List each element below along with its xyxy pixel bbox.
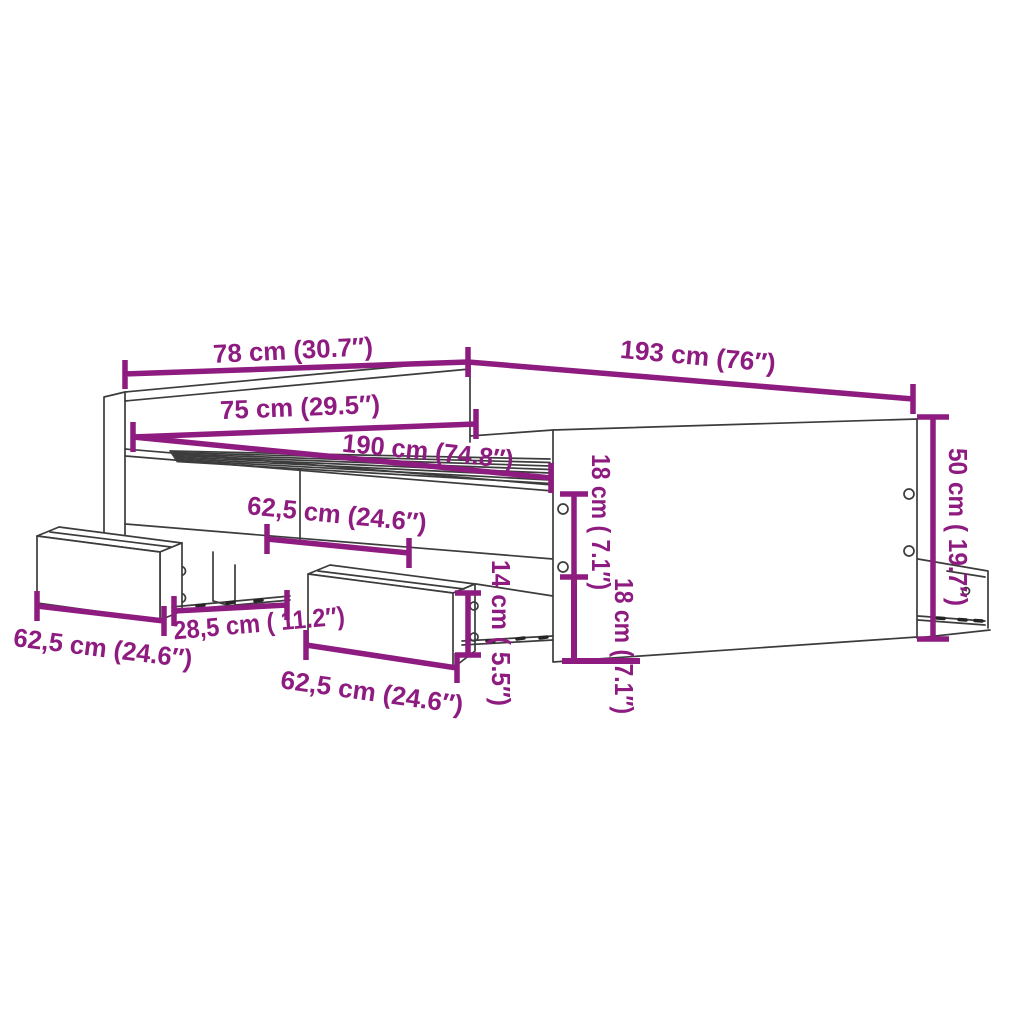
dimension-diagram: 78 cm (30.7″) 193 cm (76″) 75 cm (29.5″)… [0,0,1024,1024]
dim-label-side-rail-height-upper: 18 cm ( 7.1″) [586,454,616,590]
dim-label-drawer-front-height: 14 cm ( 5.5″) [486,560,516,706]
dim-label-headboard-width-outer: 78 cm (30.7″) [212,331,373,369]
dim-drawer-top-width: 62,5 cm (24.6″) [246,490,428,568]
dim-label-headboard-width-inner: 75 cm (29.5″) [219,389,380,425]
dim-label-side-rail-height-lower: 18 cm ( 7.1″) [609,578,639,714]
dim-footboard-height: 50 cm ( 19.7″) [917,417,973,639]
dim-label-drawer-left-width: 62,5 cm (24.6″) [12,622,194,674]
dim-frame-length-outer: 193 cm (76″) [468,334,913,414]
dim-headboard-width-outer: 78 cm (30.7″) [125,331,468,389]
dim-label-footboard-height: 50 cm ( 19.7″) [943,448,973,606]
bed-frame-diagram-svg: 78 cm (30.7″) 193 cm (76″) 75 cm (29.5″)… [0,0,1024,1024]
dim-label-drawer-mid-width: 62,5 cm (24.6″) [279,664,465,719]
dim-label-drawer-top-width: 62,5 cm (24.6″) [246,490,428,537]
dim-label-frame-length-outer: 193 cm (76″) [619,334,777,378]
